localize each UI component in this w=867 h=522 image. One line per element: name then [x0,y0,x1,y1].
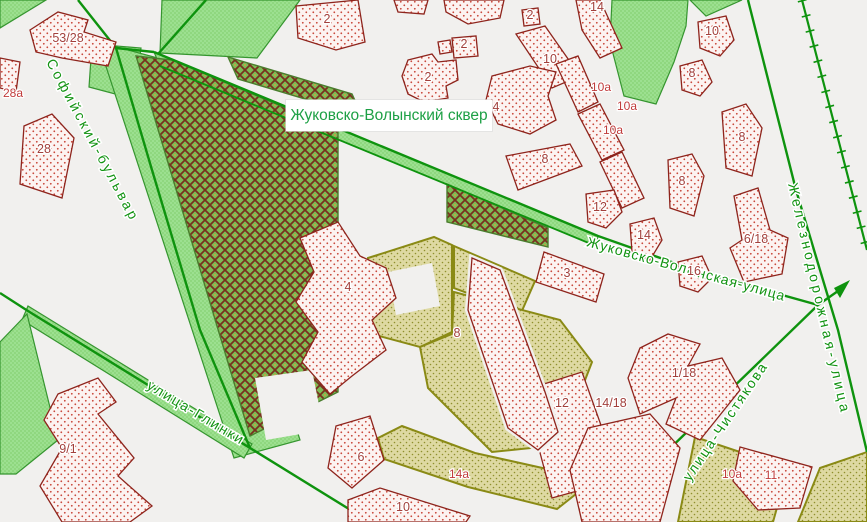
building-number-label: 10 [543,52,557,66]
building[interactable] [570,414,680,522]
park-name-label[interactable]: Жуковско-Волынский сквер [286,100,492,131]
building-number-label: 10а [722,467,742,481]
building-number-label: 3 [564,266,571,280]
park-clearing [255,370,324,440]
map-svg[interactable]: Софийский-бульварулица-ГлинкиЖуковско-Во… [0,0,867,522]
building-number-label: 14/18 [595,396,626,410]
building-number-label: 8 [679,174,686,188]
building-number-label: 2 [324,12,331,26]
building-number-label: 53/28 [52,31,83,45]
building-number-label: 4 [493,100,500,114]
building-number-label: 14а [449,467,469,481]
building-number-label: 4 [345,280,352,294]
building-number-label: 2 [527,8,534,22]
building-number-label: 14 [637,228,651,242]
building-number-label: 11 [765,468,778,482]
building-number-label: 8 [689,66,696,80]
building-number-label: 6 [358,450,365,464]
olive-area-notch [388,263,440,315]
building-number-label: 8 [454,326,461,340]
building-number-label: 28а [3,86,23,100]
building-number-label: 16 [687,264,701,278]
building-number-label: 2 [461,37,468,51]
building[interactable] [438,40,452,54]
building-number-label: 12 [555,396,569,410]
building-number-label: 14 [590,0,604,14]
building-number-label: 2 [425,70,432,84]
building-number-label: 1/18 [672,366,696,380]
map-canvas[interactable]: Софийский-бульварулица-ГлинкиЖуковско-Во… [0,0,867,522]
building-number-label: 6/18 [744,232,768,246]
building-number-label: 10а [591,80,611,94]
building-number-label: 10 [705,24,719,38]
building-number-label: 10 [396,500,410,514]
building-number-label: 10а [617,99,637,113]
building-number-label: 12 [593,200,607,214]
building-number-label: 8 [739,130,746,144]
building-number-label: 9/1 [59,442,76,456]
building-number-label: 8 [542,152,549,166]
building-number-label: 10а [603,123,623,137]
building[interactable] [394,0,428,14]
building-number-label: 28 [37,142,51,156]
